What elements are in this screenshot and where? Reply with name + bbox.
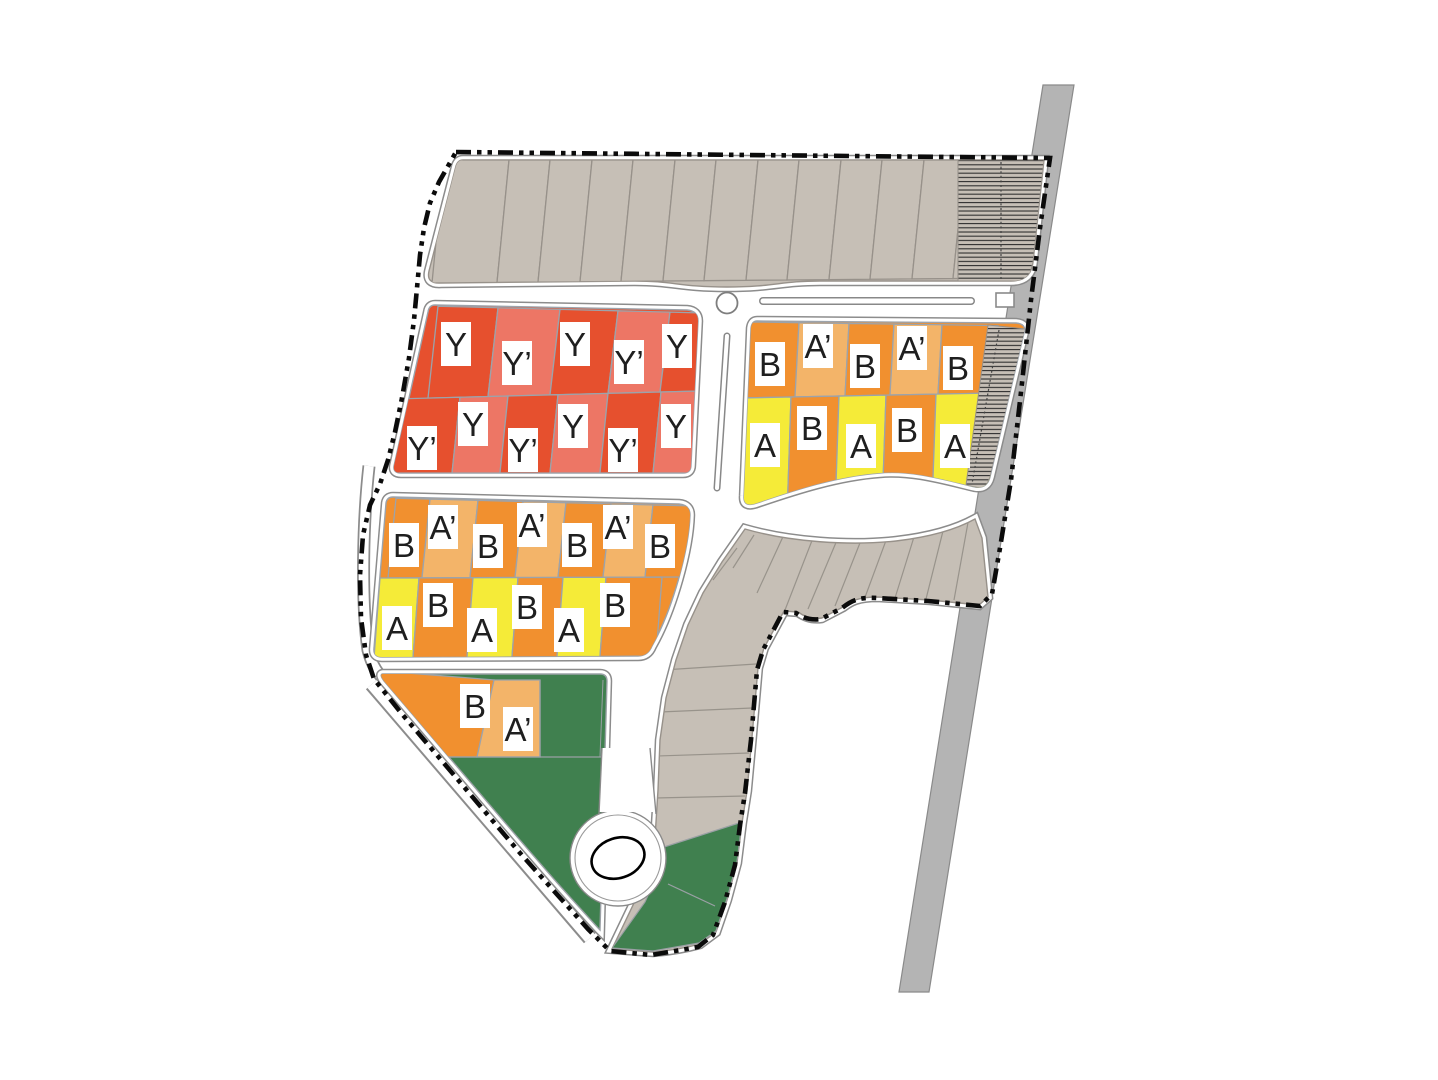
lot-label: Y (661, 404, 691, 448)
lot-label: B (460, 684, 490, 728)
svg-text:B: B (516, 589, 538, 626)
svg-text:B: B (604, 587, 626, 624)
lot-label: A (940, 424, 970, 468)
lot-label: Y’ (502, 341, 532, 385)
lot-label: A’ (503, 707, 533, 751)
svg-text:Y’: Y’ (502, 345, 531, 382)
site-plan-svg: YY’YY’YY’YY’YY’YBA’BA’BA’BABABABBA’BA’BA… (0, 0, 1438, 1080)
svg-text:B: B (464, 688, 486, 725)
lot-label: A’ (897, 326, 927, 370)
svg-text:Y: Y (445, 326, 467, 363)
lot-label: A (554, 608, 584, 652)
svg-text:Y’: Y’ (407, 430, 436, 467)
lot-label: Y (662, 324, 692, 368)
svg-text:A: A (944, 428, 966, 465)
svg-text:B: B (854, 348, 876, 385)
svg-text:B: B (427, 587, 449, 624)
svg-text:B: B (801, 410, 823, 447)
lot-label: B (562, 523, 592, 567)
svg-text:A’: A’ (505, 711, 532, 748)
hatch-area-north (958, 160, 1044, 281)
lot-label: A (382, 606, 412, 650)
svg-text:B: B (896, 412, 918, 449)
svg-text:A: A (850, 428, 872, 465)
lot-label: B (512, 585, 542, 629)
roundabout-icon (717, 293, 738, 314)
lot-label: B (755, 342, 785, 386)
lot-label: B (423, 583, 453, 627)
svg-text:Y: Y (564, 326, 586, 363)
north-lot-block (429, 160, 1053, 287)
lot-label: Y (560, 322, 590, 366)
svg-text:A: A (558, 612, 580, 649)
svg-text:B: B (566, 527, 588, 564)
gate-rectangle (996, 293, 1014, 307)
lot-label: A (846, 424, 876, 468)
svg-text:A’: A’ (519, 507, 546, 544)
svg-text:Y: Y (562, 408, 584, 445)
svg-text:A: A (754, 427, 776, 464)
site-plan-page: YY’YY’YY’YY’YY’YBA’BA’BA’BABABABBA’BA’BA… (0, 0, 1438, 1080)
lot-label: B (943, 346, 973, 390)
lot-label: B (389, 523, 419, 567)
svg-text:B: B (649, 528, 671, 565)
svg-text:B: B (947, 350, 969, 387)
svg-text:Y: Y (462, 406, 484, 443)
lot-label: A’ (603, 505, 633, 549)
lot-label: A (467, 608, 497, 652)
svg-text:A’: A’ (805, 328, 832, 365)
lot-label: Y (458, 402, 488, 446)
svg-text:A’: A’ (430, 509, 457, 546)
lot-label: A’ (428, 505, 458, 549)
lot-label: A’ (517, 503, 547, 547)
svg-text:Y: Y (665, 408, 687, 445)
lot-label: Y (558, 404, 588, 448)
median-vertical (717, 336, 727, 488)
svg-text:A: A (471, 612, 493, 649)
svg-text:Y’: Y’ (608, 432, 637, 469)
svg-text:Y’: Y’ (508, 432, 537, 469)
svg-text:B: B (759, 346, 781, 383)
lot-label: B (797, 406, 827, 450)
lot-label: B (473, 524, 503, 568)
lot-label: B (850, 344, 880, 388)
lot-label: B (892, 408, 922, 452)
svg-text:Y’: Y’ (614, 344, 643, 381)
lot-label: Y’ (608, 428, 638, 472)
lot-label: Y (441, 322, 471, 366)
svg-text:A: A (386, 610, 408, 647)
lot-label: A (750, 423, 780, 467)
lot-label: B (600, 583, 630, 627)
svg-text:Y: Y (666, 328, 688, 365)
svg-text:B: B (393, 527, 415, 564)
svg-text:A’: A’ (605, 509, 632, 546)
lot-label: Y’ (614, 340, 644, 384)
svg-text:A’: A’ (899, 330, 926, 367)
lot-label: A’ (803, 324, 833, 368)
svg-text:B: B (477, 528, 499, 565)
lot-label: Y’ (407, 426, 437, 470)
lot-label: Y’ (508, 428, 538, 472)
lot-label: B (645, 524, 675, 568)
